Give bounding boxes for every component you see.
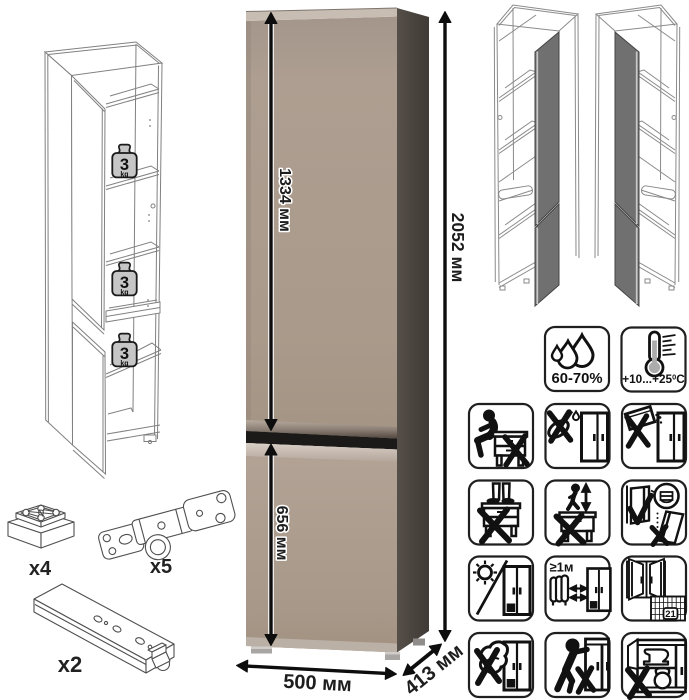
svg-text:500 мм: 500 мм <box>283 671 353 697</box>
svg-text:21: 21 <box>665 609 676 620</box>
svg-text:x5: x5 <box>150 556 172 578</box>
svg-text:2052 мм: 2052 мм <box>448 213 468 283</box>
svg-text:+10...+250С: +10...+250С <box>622 372 685 386</box>
svg-text:≥1м: ≥1м <box>550 560 574 575</box>
svg-text:1334 мм: 1334 мм <box>276 168 293 232</box>
svg-text:x2: x2 <box>58 652 82 677</box>
svg-text:60-70%: 60-70% <box>551 371 602 387</box>
svg-text:656 мм: 656 мм <box>273 506 290 561</box>
svg-text:x4: x4 <box>29 558 52 580</box>
